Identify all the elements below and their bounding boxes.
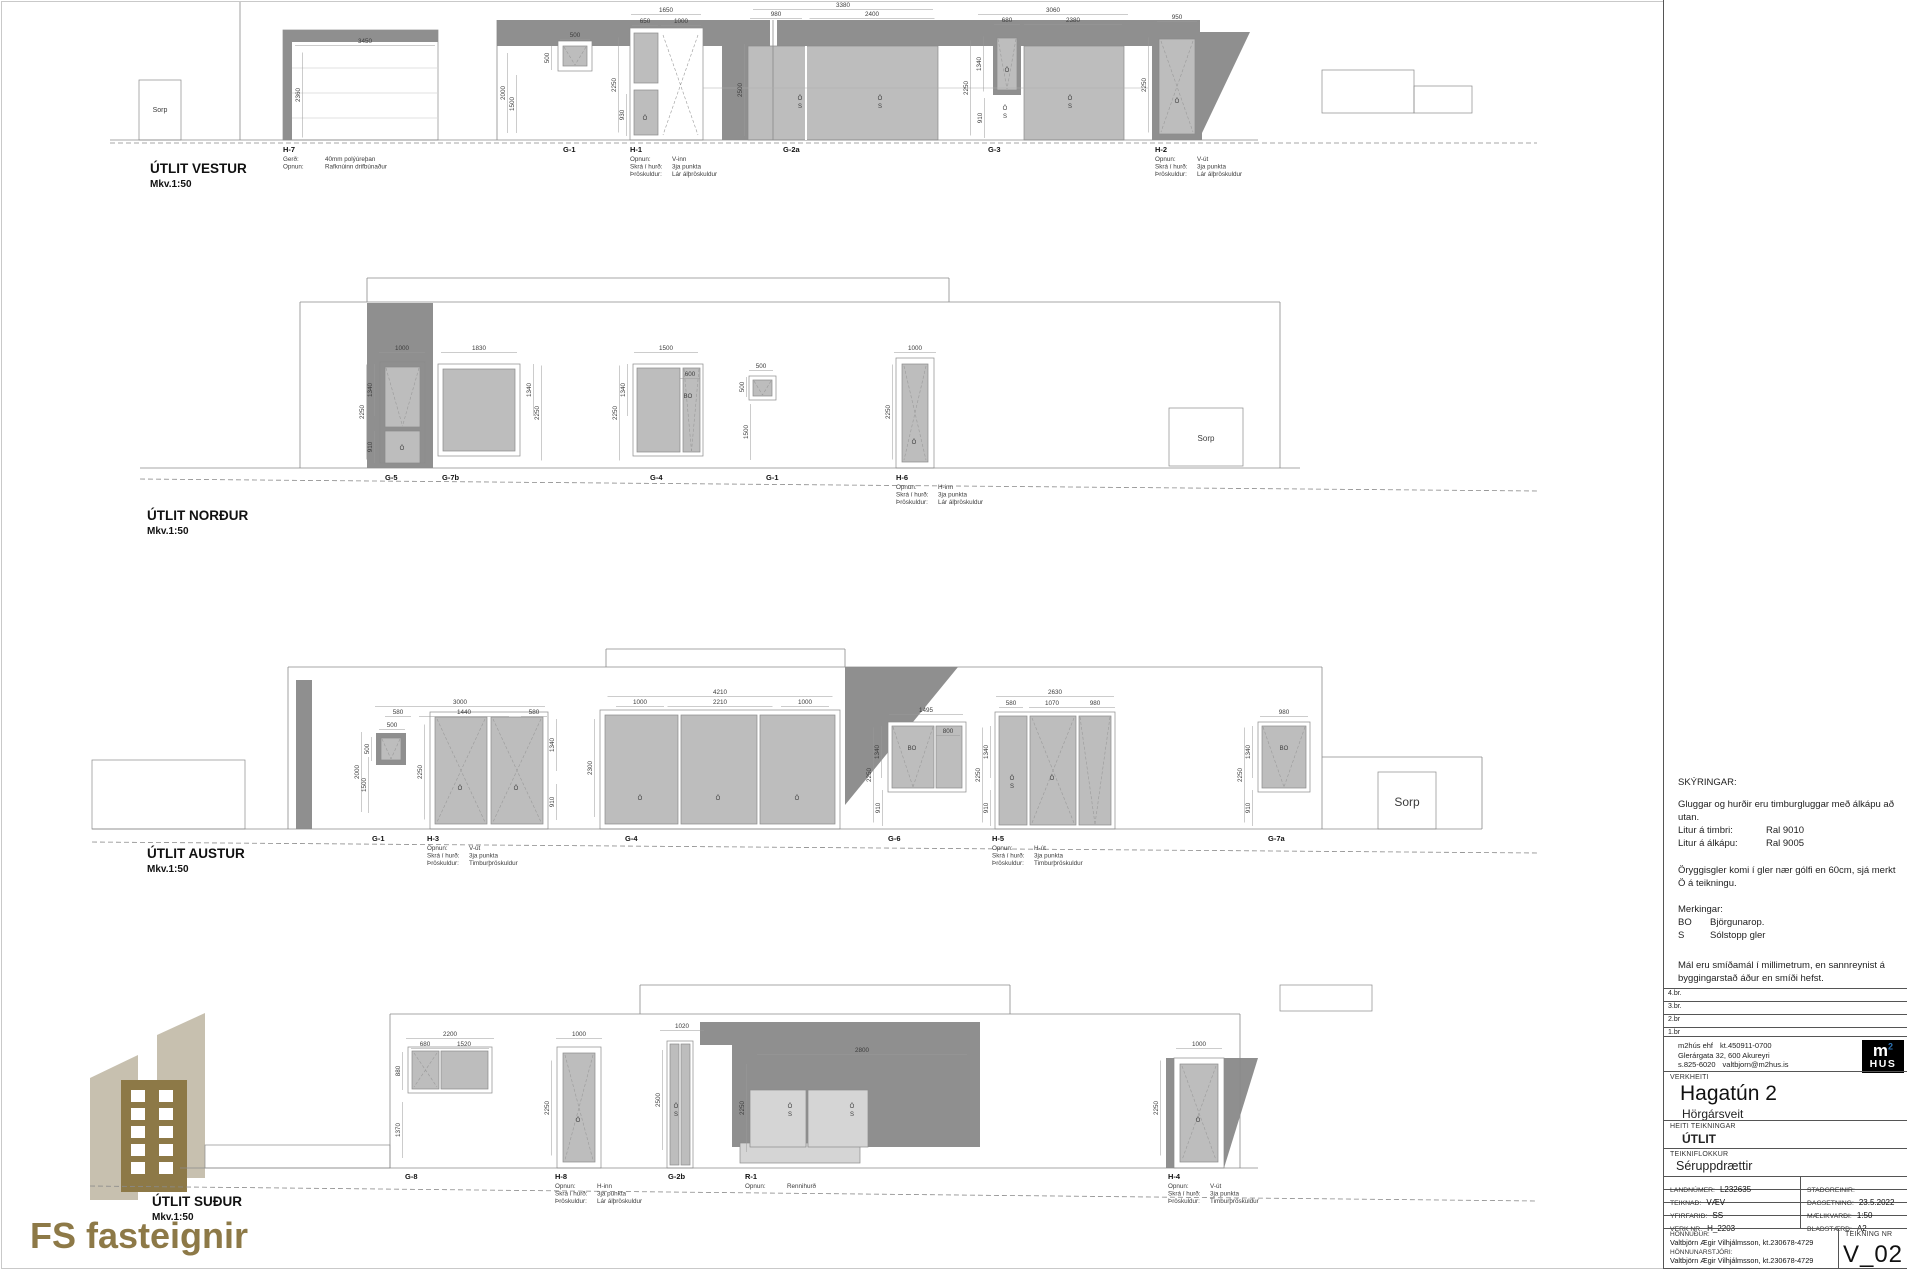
dim-text: 1340 <box>983 745 990 760</box>
opening-label: G-1 <box>563 145 576 154</box>
annotation-key: Opnun: <box>283 164 304 171</box>
dim-text: 930 <box>619 109 626 120</box>
opening-shape <box>777 20 1200 46</box>
opening-shape <box>605 715 678 824</box>
annotation-key: Þröskuldur: <box>427 860 459 867</box>
flokkur-label: TEIKNIFLOKKUR <box>1664 1149 1907 1158</box>
annotation-key: Opnun: <box>555 1183 576 1190</box>
dim-text: 2250 <box>1237 768 1244 783</box>
logo-window <box>131 1126 145 1138</box>
mark-text: Ö <box>1003 105 1008 112</box>
opening-label: G-4 <box>650 473 663 482</box>
m2hus-logo: m2 HUS <box>1862 1040 1904 1073</box>
mark-text: Ö <box>638 795 643 802</box>
drawing-title: ÚTLIT <box>1664 1132 1907 1146</box>
annotation-key: Skrá í hurð: <box>427 852 460 860</box>
opening-shape <box>1079 716 1111 825</box>
mark-text: Ö <box>878 95 883 102</box>
opening-shape <box>997 38 1017 90</box>
mark-text: S <box>1068 104 1072 110</box>
opening-label: G-1 <box>372 834 385 843</box>
dim-text: 4210 <box>713 689 728 696</box>
dim-text: 950 <box>1172 14 1183 21</box>
opening-shape <box>722 46 748 140</box>
logo-window <box>159 1126 173 1138</box>
logo-window <box>131 1162 145 1174</box>
teikning-label: TEIKNING NR <box>1839 1229 1907 1238</box>
mark-text: S <box>798 104 802 110</box>
mark-text: Ö <box>850 1103 855 1110</box>
dim-text: 2400 <box>865 11 880 18</box>
annotation-key: Skrá í hurð: <box>1168 1190 1201 1198</box>
opening-shape <box>1180 1064 1218 1162</box>
notes-s: SSólstopp gler <box>1678 929 1898 942</box>
opening-label: H-6 <box>896 473 908 482</box>
dim-text: 1340 <box>1245 745 1252 760</box>
annotation-value: Lár álþröskuldur <box>672 171 717 178</box>
mark-text: S <box>674 1112 678 1118</box>
drawing-sheet: FS fasteignir345023605005002000150016506… <box>0 0 1920 1280</box>
opening-label: H-1 <box>630 145 642 154</box>
opening-label: H-5 <box>992 834 1004 843</box>
notes-alu: Litur á álkápu:Ral 9005 <box>1678 837 1898 850</box>
dim-text: 500 <box>387 722 398 729</box>
project-name: Hagatún 2 <box>1664 1082 1907 1106</box>
honnudur-label: HÖNNUÐUR: <box>1664 1229 1838 1238</box>
dim-text: 500 <box>364 743 371 754</box>
dim-text: 2250 <box>1153 1101 1160 1116</box>
elevation-title: ÚTLIT AUSTUR <box>147 846 245 861</box>
opening-label: G-2b <box>668 1172 686 1181</box>
annotation-value: 3ja punkta <box>938 492 968 499</box>
dim-text: 680 <box>420 1041 431 1048</box>
dim-text: 2300 <box>587 761 594 776</box>
opening-shape <box>385 367 420 427</box>
mark-text: Sorp <box>1394 795 1420 809</box>
municipality: Hörgársveit <box>1664 1107 1907 1121</box>
mark-text: Ö <box>1068 95 1073 102</box>
opening-shape <box>760 715 835 824</box>
annotation-key: Þröskuldur: <box>1168 1198 1200 1205</box>
mark-text: Ö <box>576 1117 581 1124</box>
dim-text: 1340 <box>976 57 983 72</box>
dim-text: 2250 <box>1141 78 1148 93</box>
elevation-austur: 3000580144058050050020001500225013409104… <box>92 649 1537 875</box>
grid-row: VERK NR.H_2203 BLAÐSTÆRÐ:A2 <box>1664 1215 1907 1228</box>
notes-merkingar: Merkingar: <box>1678 903 1898 916</box>
annotation-value: Lár álþröskuldur <box>1197 171 1242 178</box>
opening-label: H-2 <box>1155 145 1167 154</box>
opening-shape <box>902 364 928 462</box>
opening-label: G-3 <box>988 145 1001 154</box>
dim-text: 980 <box>1279 709 1290 716</box>
opening-label: H-7 <box>283 145 295 154</box>
dim-text: 910 <box>549 796 556 807</box>
mark-text: S <box>788 1112 792 1118</box>
annotation-value: V-inn <box>672 156 687 163</box>
dim-text: 880 <box>395 1065 402 1076</box>
dim-text: 1340 <box>549 738 556 753</box>
dim-text: 600 <box>685 371 696 378</box>
opening-label: H-3 <box>427 834 439 843</box>
elevation-scale: Mkv.1:50 <box>147 526 189 537</box>
heiti-section: HEITI TEIKNINGAR ÚTLIT <box>1664 1120 1907 1148</box>
stjori-name: Valtbjörn Ægir Vilhjálmsson, kt.230678-4… <box>1664 1256 1838 1265</box>
annotation-key: Skrá í hurð: <box>992 852 1025 860</box>
dim-text: 1000 <box>395 345 410 352</box>
opening-shape <box>753 380 772 396</box>
opening-shape <box>563 1053 595 1162</box>
dim-text: 500 <box>756 363 767 370</box>
dim-text: 2250 <box>417 765 424 780</box>
opening-label: G-7b <box>442 473 460 482</box>
opening-shape <box>634 90 658 135</box>
annotation-key: Opnun: <box>745 1183 766 1190</box>
dim-text: 1370 <box>395 1123 402 1138</box>
dim-text: 1000 <box>674 18 689 25</box>
annotation-value: V-út <box>469 845 480 852</box>
dim-text: 1340 <box>620 383 627 398</box>
revision-row: 4.br. <box>1664 988 1907 1001</box>
dim-text: 580 <box>1006 700 1017 707</box>
logo-window <box>159 1144 173 1156</box>
dim-text: 2360 <box>295 88 302 103</box>
opening-shape <box>637 368 680 452</box>
shadow-shape <box>1202 32 1250 133</box>
annotation-key: Þröskuldur: <box>992 860 1024 867</box>
notes-heading: SKÝRINGAR: <box>1678 776 1898 789</box>
drawing-category: Séruppdrættir <box>1664 1159 1907 1173</box>
elevation-scale: Mkv.1:50 <box>152 1212 194 1223</box>
dim-text: 2250 <box>544 1101 551 1116</box>
mark-text: Ö <box>1196 1117 1201 1124</box>
opening-label: G-1 <box>766 473 779 482</box>
annotation-value: V-út <box>1210 1183 1221 1190</box>
annotation-key: Þröskuldur: <box>896 499 928 506</box>
dim-text: 3000 <box>453 699 468 706</box>
honnudur-name: Valtbjörn Ægir Vilhjálmsson, kt.230678-4… <box>1664 1238 1838 1247</box>
grid-row: YFIRFARIÐ:SS MÆLIKVARÐI:1:50 <box>1664 1202 1907 1215</box>
annotation-key: Þröskuldur: <box>630 171 662 178</box>
opening-label: R-1 <box>745 1172 757 1181</box>
logo-window <box>159 1108 173 1120</box>
annotation-key: Þröskuldur: <box>1155 171 1187 178</box>
dim-text: 1520 <box>457 1041 472 1048</box>
mark-text: Ö <box>643 115 648 122</box>
opening-shape <box>296 680 312 829</box>
opening-shape <box>999 716 1027 825</box>
annotation-key: Opnun: <box>1168 1183 1189 1190</box>
opening-shape <box>681 715 757 824</box>
opening-shape <box>283 30 438 140</box>
mark-text: Ö <box>716 795 721 802</box>
annotation-value: 3ja punkta <box>672 164 702 171</box>
fs-fasteignir-logo: FS fasteignir <box>30 1013 248 1256</box>
dim-text: 3380 <box>836 2 851 9</box>
dim-text: 2210 <box>713 699 728 706</box>
logo-tower-shape <box>121 1080 187 1192</box>
dim-text: 650 <box>640 18 651 25</box>
annotation-value: V-út <box>1197 156 1208 163</box>
mark-text: BO <box>908 746 917 752</box>
logo-brand-text: FS fasteignir <box>30 1215 248 1256</box>
dim-text: 580 <box>529 709 540 716</box>
notes-bo: BOBjörgunarop. <box>1678 916 1898 929</box>
designers-block: HÖNNUÐUR: Valtbjörn Ægir Vilhjálmsson, k… <box>1664 1228 1839 1268</box>
dim-text: 2250 <box>534 406 541 421</box>
logo-window <box>131 1144 145 1156</box>
mark-text: S <box>1010 784 1014 790</box>
drawing-svg: FS fasteignir345023605005002000150016506… <box>0 0 1920 1280</box>
dim-text: 2250 <box>612 406 619 421</box>
opening-label: H-4 <box>1168 1172 1181 1181</box>
annotation-value: H-inn <box>938 484 954 491</box>
dim-text: 500 <box>570 32 581 39</box>
dim-text: 2250 <box>611 78 618 93</box>
opening-label: G-6 <box>888 834 901 843</box>
annotation-value: Timburþröskuldur <box>1034 860 1083 867</box>
fields-grid: LANDNÚMER:L232635 STAÐGREINIR: TEIKNAÐ:V… <box>1664 1176 1907 1228</box>
annotation-value: Timburþröskuldur <box>1210 1198 1259 1205</box>
dim-text: 580 <box>393 709 404 716</box>
title-block: SKÝRINGAR: Gluggar og hurðir eru timburg… <box>1663 0 1907 1269</box>
annotation-key: Skrá í hurð: <box>555 1190 588 1198</box>
notes-section: SKÝRINGAR: Gluggar og hurðir eru timburg… <box>1678 776 1898 985</box>
opening-shape <box>563 46 587 66</box>
opening-shape <box>1280 985 1372 1011</box>
dim-text: 1340 <box>874 745 881 760</box>
annotation-key: Opnun: <box>427 845 448 852</box>
annotation-key: Þröskuldur: <box>555 1198 587 1205</box>
mark-text: Ö <box>1005 67 1010 74</box>
dim-text: 2200 <box>443 1031 458 1038</box>
drawing-number-cell: TEIKNING NR V_02 <box>1839 1228 1907 1268</box>
mark-text: BO <box>684 394 693 400</box>
logo-window <box>159 1090 173 1102</box>
company-block: m2hús ehfkt.450911-0700 Glerárgata 32, 6… <box>1664 1036 1907 1071</box>
annotation-value: 3ja punkta <box>1034 853 1064 860</box>
dim-text: 1495 <box>919 707 934 714</box>
dim-text: 1000 <box>908 345 923 352</box>
outline-line <box>92 842 1537 853</box>
dim-text: 910 <box>367 441 374 452</box>
notes-measure: Mál eru smíðamál í millimetrum, en sannr… <box>1678 959 1898 985</box>
grid-row: TEIKNAÐ:VÆV DAGSETNING:23.5.2022 <box>1664 1189 1907 1202</box>
dim-text: 2000 <box>354 765 361 780</box>
mark-text: Ö <box>1175 98 1180 105</box>
annotation-value: 3ja punkta <box>469 853 499 860</box>
opening-shape <box>441 1051 488 1089</box>
dim-text: 2250 <box>739 1101 746 1116</box>
dim-text: 1650 <box>659 7 674 14</box>
revision-table: 4.br. 3.br. 2.br 1.br <box>1664 988 1907 1040</box>
opening-shape <box>283 42 292 140</box>
elevation-title: ÚTLIT SUÐUR <box>152 1194 242 1209</box>
opening-shape <box>683 368 700 452</box>
dim-text: 910 <box>977 112 984 123</box>
mark-text: S <box>878 104 882 110</box>
opening-label: G-4 <box>625 834 638 843</box>
opening-label: G-7a <box>1268 834 1286 843</box>
mark-text: Ö <box>400 445 405 452</box>
opening-label: H-8 <box>555 1172 567 1181</box>
dim-text: 2500 <box>655 1093 662 1108</box>
dim-text: 2000 <box>500 86 507 101</box>
dim-text: 2250 <box>866 768 873 783</box>
opening-shape <box>808 1090 868 1147</box>
notes-line: Gluggar og hurðir eru timburgluggar með … <box>1678 798 1898 824</box>
annotation-value: H-út <box>1034 845 1046 852</box>
dim-text: 2250 <box>963 81 970 96</box>
dim-text: 1340 <box>526 383 533 398</box>
annotation-value: 3ja punkta <box>1210 1191 1240 1198</box>
mark-text: Ö <box>788 1103 793 1110</box>
opening-shape <box>681 1044 690 1165</box>
annotation-value: Lár álþröskuldur <box>597 1198 642 1205</box>
annotation-key: Opnun: <box>992 845 1013 852</box>
dim-text: 3060 <box>1046 7 1061 14</box>
logo-window <box>159 1162 173 1174</box>
opening-shape <box>750 1090 806 1147</box>
opening-label: G-5 <box>385 473 398 482</box>
annotation-key: Opnun: <box>630 156 651 163</box>
dim-text: 2380 <box>1066 17 1081 24</box>
annotation-value: 3ja punkta <box>597 1191 627 1198</box>
elevation-scale: Mkv.1:50 <box>147 864 189 875</box>
elevation-vestur: 3450236050050020001500165065010002250930… <box>110 2 1537 190</box>
mark-text: Sorp <box>1198 434 1215 443</box>
dim-text: 980 <box>1090 700 1101 707</box>
dim-text: 3450 <box>358 38 373 45</box>
opening-shape <box>1322 70 1414 113</box>
opening-shape <box>634 33 658 83</box>
opening-label: G-2a <box>783 145 801 154</box>
dim-text: 2250 <box>359 405 366 420</box>
mark-text: Ö <box>795 795 800 802</box>
notes-safety: Öryggisgler komi í gler nær gólfi en 60c… <box>1678 864 1898 890</box>
heiti-label: HEITI TEIKNINGAR <box>1664 1121 1907 1130</box>
dim-text: 2630 <box>1048 689 1063 696</box>
opening-shape <box>1414 86 1472 113</box>
dim-text: 1500 <box>509 97 516 112</box>
logo-window <box>131 1090 145 1102</box>
mark-text: Ö <box>798 95 803 102</box>
notes-timber: Litur á timbri:Ral 9010 <box>1678 824 1898 837</box>
mark-text: S <box>850 1112 854 1118</box>
mark-text: Ö <box>674 1103 679 1110</box>
annotation-key: Gerð: <box>283 155 299 163</box>
stjori-label: HÖNNUNARSTJÓRI: <box>1664 1247 1838 1256</box>
annotation-value: H-inn <box>597 1183 613 1190</box>
dim-text: 1000 <box>633 699 648 706</box>
dim-text: 500 <box>739 381 746 392</box>
dim-text: 1500 <box>743 425 750 440</box>
opening-shape <box>1262 726 1306 788</box>
mark-text: Ö <box>912 439 917 446</box>
dim-text: 910 <box>983 802 990 813</box>
dim-text: 910 <box>875 802 882 813</box>
elevation-nordur: 1000183022501340910134022501500600134022… <box>140 278 1537 537</box>
opening-label: G-8 <box>405 1172 418 1181</box>
mark-text: Ö <box>458 785 463 792</box>
opening-shape <box>892 726 934 788</box>
dim-text: 1000 <box>798 699 813 706</box>
annotation-key: Skrá í hurð: <box>896 491 929 499</box>
dim-text: 1440 <box>457 709 472 716</box>
dim-text: 1000 <box>1192 1041 1207 1048</box>
opening-shape <box>1159 39 1195 134</box>
dim-text: 1020 <box>675 1023 690 1030</box>
elevation-title: ÚTLIT NORÐUR <box>147 508 248 523</box>
mark-text: BO <box>1280 746 1289 752</box>
annotation-value: Rennihurð <box>787 1182 817 1190</box>
dim-text: 500 <box>544 52 551 63</box>
opening-shape <box>381 738 401 760</box>
dim-text: 2800 <box>855 1047 870 1054</box>
elevation-title: ÚTLIT VESTUR <box>150 161 247 176</box>
dim-text: 2250 <box>975 768 982 783</box>
opening-shape <box>205 1145 390 1168</box>
mark-text: Ö <box>1010 775 1015 782</box>
opening-shape <box>748 46 938 140</box>
logo-window <box>131 1108 145 1120</box>
dim-text: 800 <box>943 728 954 735</box>
dim-text: 1340 <box>367 383 374 398</box>
shadow-shape <box>1224 1058 1258 1168</box>
annotation-key: Opnun: <box>896 484 917 491</box>
revision-row: 3.br. <box>1664 1001 1907 1014</box>
dim-text: 1830 <box>472 345 487 352</box>
mark-text: Ö <box>1050 775 1055 782</box>
grid-row: LANDNÚMER:L232635 STAÐGREINIR: <box>1664 1176 1907 1189</box>
opening-shape <box>1024 46 1124 140</box>
mark-text: Ö <box>514 785 519 792</box>
annotation-value: Timburþröskuldur <box>469 860 518 867</box>
mark-text: Sorp <box>153 107 168 114</box>
annotation-value: Rafknúinn drifbúnaður <box>325 163 387 171</box>
annotation-key: Opnun: <box>1155 156 1176 163</box>
dim-text: 1000 <box>572 1031 587 1038</box>
flokkur-section: TEIKNIFLOKKUR Séruppdrættir <box>1664 1148 1907 1176</box>
dim-text: 2250 <box>885 405 892 420</box>
revision-row: 2.br <box>1664 1014 1907 1027</box>
annotation-value: 40mm polýúreþan <box>325 156 376 163</box>
annotation-value: Lár álþröskuldur <box>938 499 983 506</box>
elevation-scale: Mkv.1:50 <box>150 179 192 190</box>
drawing-number: V_02 <box>1839 1241 1907 1269</box>
dim-text: 1070 <box>1045 700 1060 707</box>
dim-text: 910 <box>1245 802 1252 813</box>
opening-shape <box>92 760 245 829</box>
dim-text: 1500 <box>361 778 368 793</box>
annotation-key: Skrá í hurð: <box>1155 163 1188 171</box>
mark-text: S <box>1003 114 1007 120</box>
elevation-sudur: 2200680152088013701000225010202500280022… <box>90 985 1537 1223</box>
dim-text: 2500 <box>737 83 744 98</box>
dim-text: 1500 <box>659 345 674 352</box>
dim-text: 980 <box>771 11 782 18</box>
dim-text: 680 <box>1002 17 1013 24</box>
outline-line <box>140 479 1537 491</box>
opening-shape <box>443 369 515 451</box>
annotation-value: 3ja punkta <box>1197 164 1227 171</box>
m2hus-logo-mark: m2 <box>1862 1042 1904 1059</box>
annotation-key: Skrá í hurð: <box>630 163 663 171</box>
verkheiti-section: VERKHEITI Hagatún 2 Hörgársveit <box>1664 1071 1907 1120</box>
opening-shape <box>1166 1058 1174 1168</box>
verkheiti-label: VERKHEITI <box>1664 1072 1907 1081</box>
